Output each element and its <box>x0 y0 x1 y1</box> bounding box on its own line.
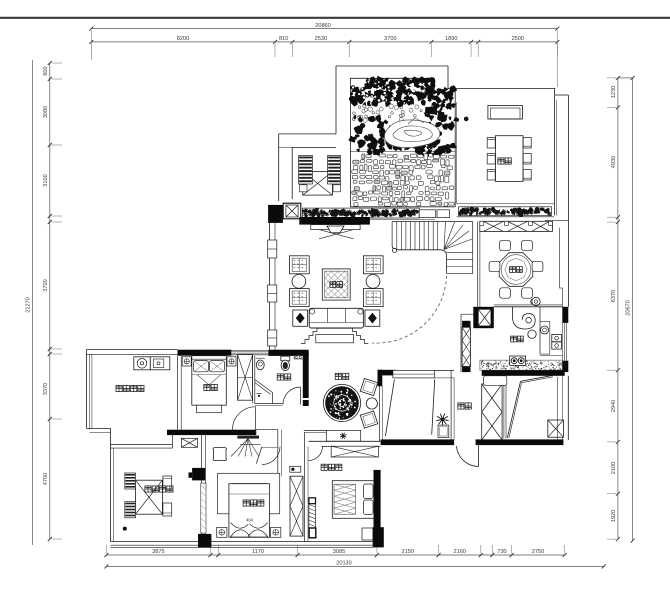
svg-text:8200: 8200 <box>177 36 189 42</box>
svg-text:730: 730 <box>497 549 506 555</box>
svg-text:2750: 2750 <box>532 549 544 555</box>
svg-text:4930: 4930 <box>611 156 617 168</box>
svg-text:3085: 3085 <box>333 549 345 555</box>
svg-text:2150: 2150 <box>401 549 413 555</box>
svg-text:6370: 6370 <box>611 290 617 302</box>
svg-text:600: 600 <box>43 66 49 75</box>
svg-text:4700: 4700 <box>43 473 49 485</box>
svg-text:2100: 2100 <box>611 462 617 474</box>
svg-text:404: 404 <box>246 518 254 523</box>
svg-text:2160: 2160 <box>453 549 465 555</box>
svg-text:21270: 21270 <box>26 297 32 313</box>
svg-text:2530: 2530 <box>315 36 327 42</box>
svg-text:3700: 3700 <box>384 36 396 42</box>
svg-text:1230: 1230 <box>611 86 617 98</box>
svg-text:3100: 3100 <box>43 174 49 186</box>
svg-text:20860: 20860 <box>315 23 331 29</box>
svg-text:3700: 3700 <box>43 279 49 291</box>
svg-text:2940: 2940 <box>611 400 617 412</box>
svg-text:1890: 1890 <box>445 36 457 42</box>
svg-text:810: 810 <box>279 36 288 42</box>
svg-text:20130: 20130 <box>336 561 352 567</box>
svg-text:1920: 1920 <box>611 510 617 522</box>
svg-text:2500: 2500 <box>512 36 524 42</box>
svg-text:1170: 1170 <box>252 549 264 555</box>
svg-text:3080: 3080 <box>43 106 49 118</box>
svg-text:20670: 20670 <box>626 300 632 316</box>
svg-text:3875: 3875 <box>152 549 164 555</box>
svg-text:3370: 3370 <box>43 383 49 395</box>
